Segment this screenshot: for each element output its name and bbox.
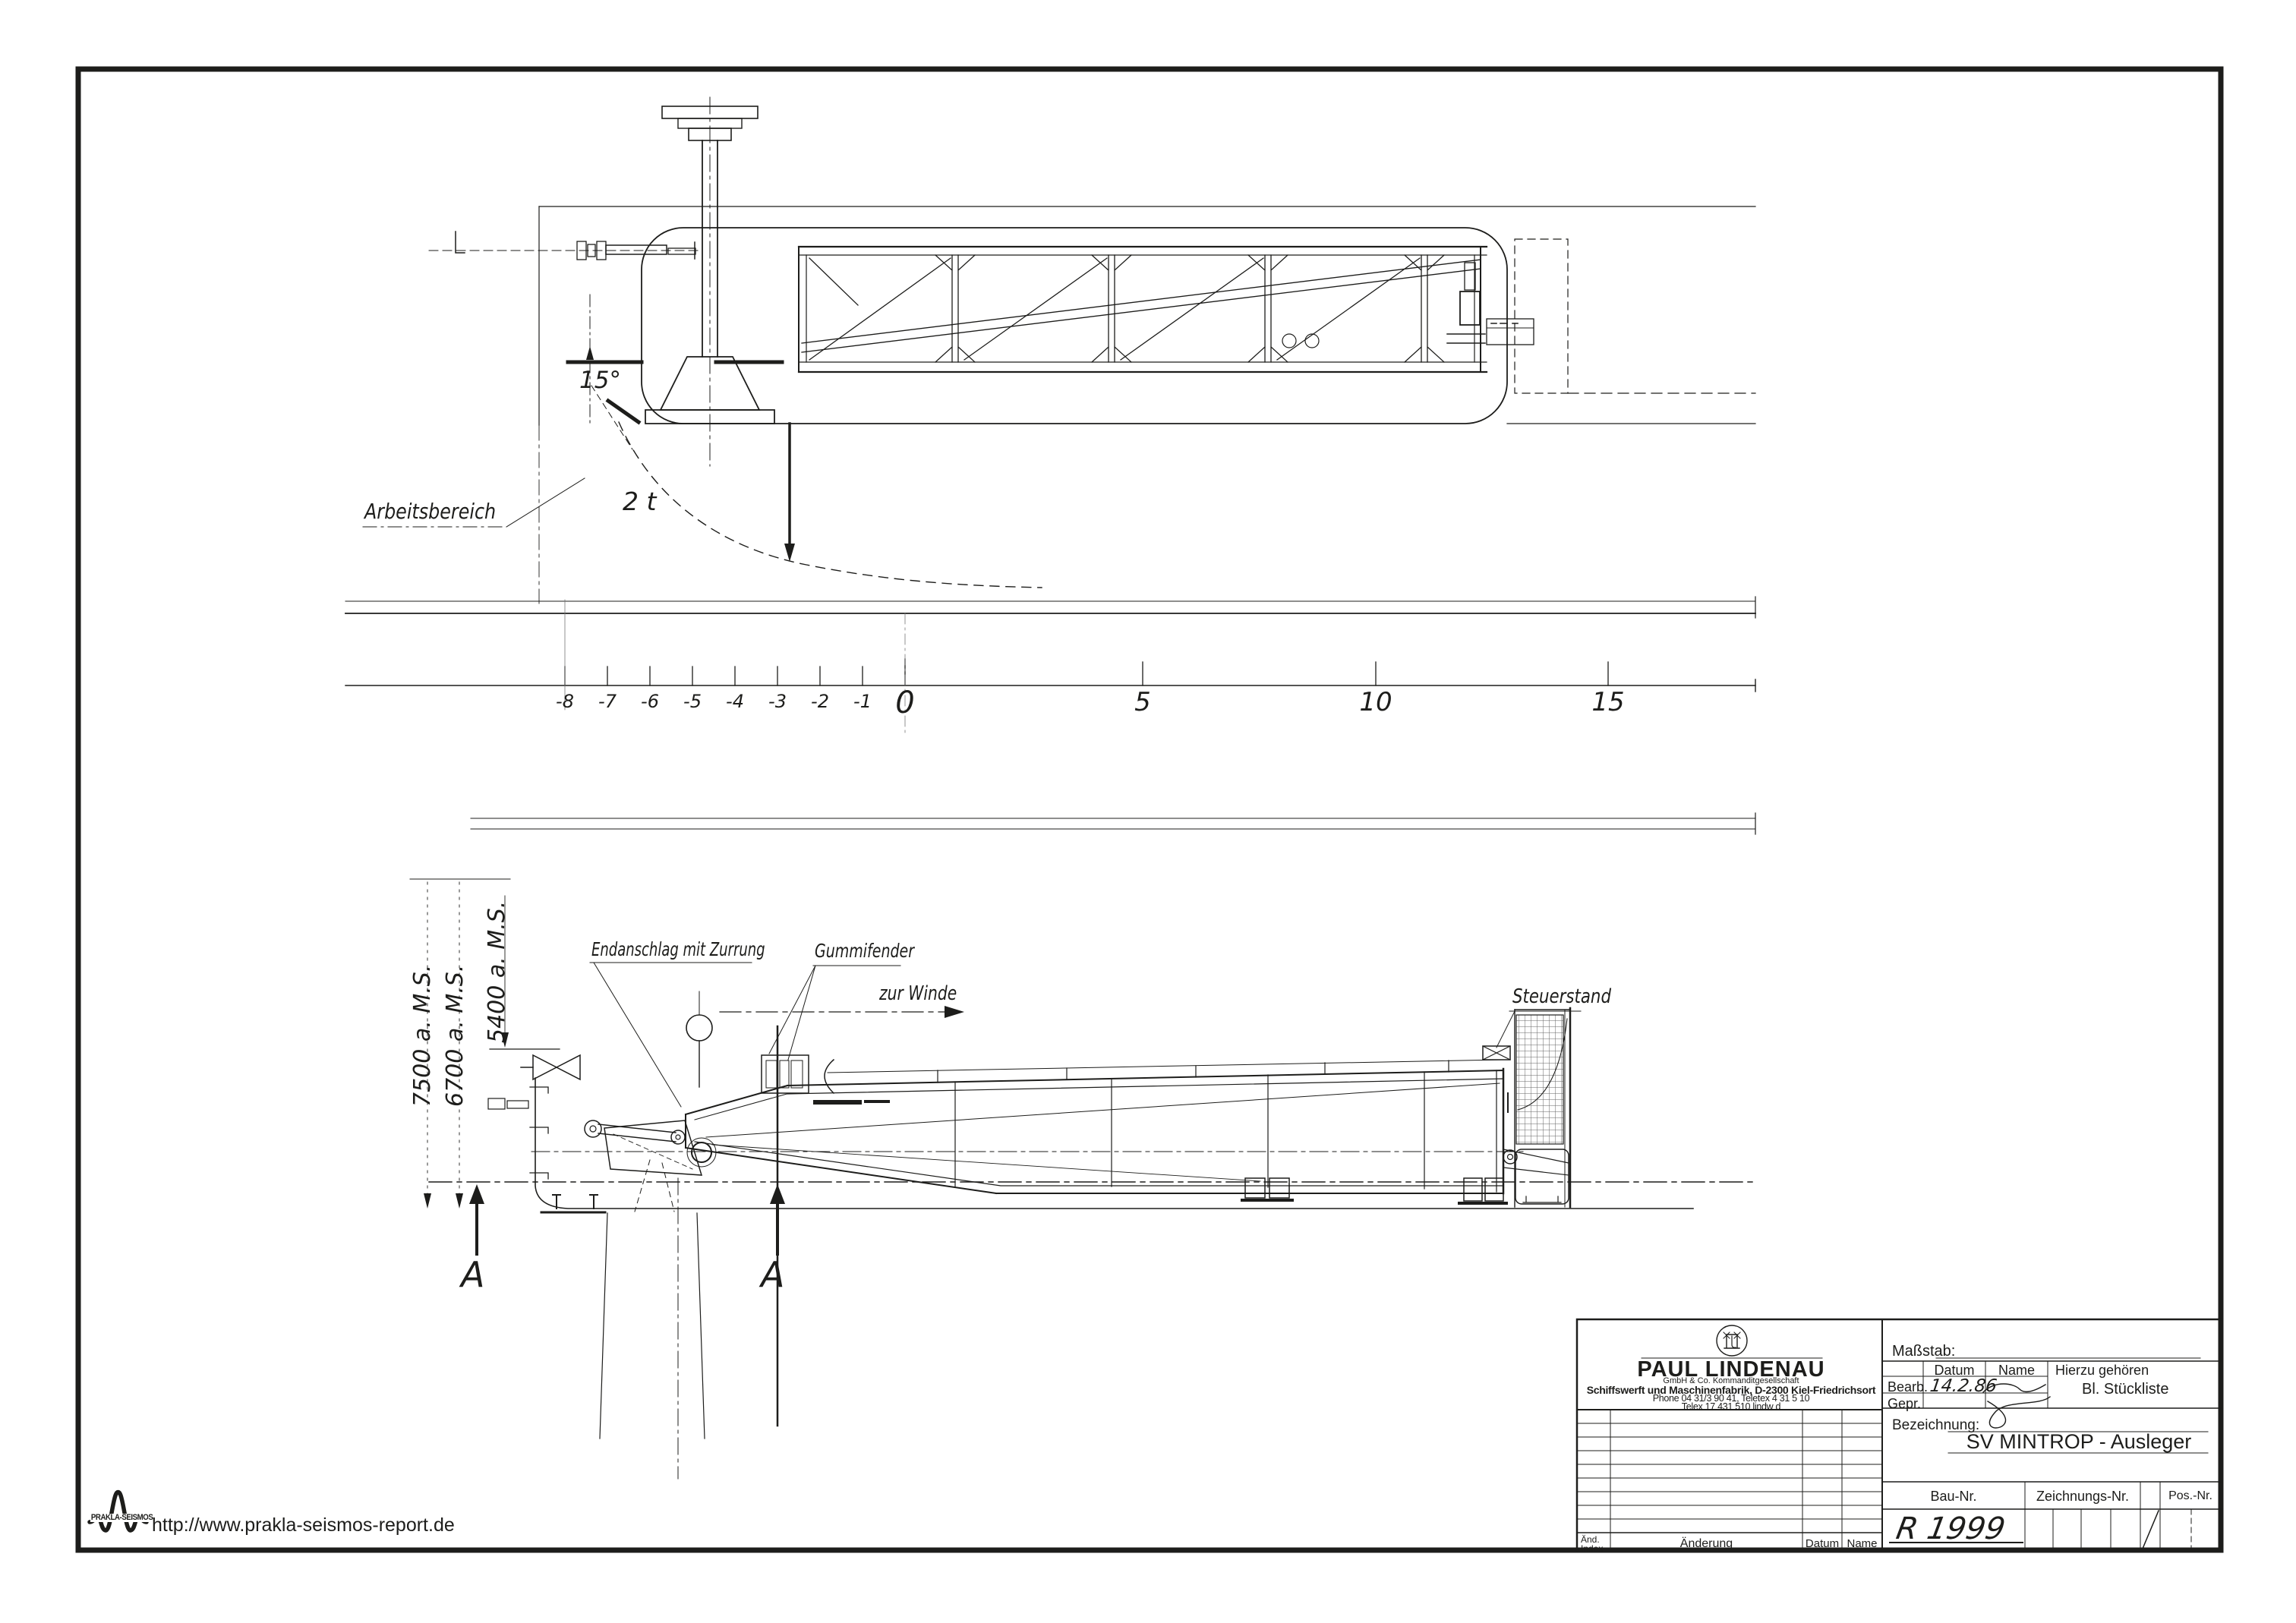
section-a-right-label: A [761,1257,784,1292]
stueckliste-label: Bl. Stückliste [2082,1382,2168,1397]
slew-angle-label: 15° [579,369,621,392]
load-capacity-label: 2 t [623,489,656,514]
gummifender-text: Gummifender [815,941,914,960]
zur-winde-label: zur Winde [879,984,979,1004]
steuerstand-text: Steuerstand [1512,987,1611,1007]
datum-header: Datum [1923,1363,1985,1377]
arbeitsbereich-label: Arbeitsbereich [364,501,519,522]
sheet-frame [78,69,2221,1550]
lindenau-emblem [1717,1325,1747,1356]
section-a-left-label: A [461,1257,484,1292]
ruler-tick-15: 15 [1585,689,1631,715]
elevation-view [429,991,1755,1479]
rev-name-label: Name [1842,1538,1882,1549]
ruler-tick-neg4: -4 [712,692,758,711]
ruler-tick-zero: 0 [882,688,928,718]
endanschlag-label: Endanschlag mit Zurrung [591,940,833,959]
ruler-tick-neg3: -3 [755,692,800,711]
gepr-label: Gepr. [1888,1397,1921,1410]
arbeitsbereich-text: Arbeitsbereich [364,501,496,522]
rev-datum-label: Datum [1802,1538,1842,1549]
name-header: Name [1985,1363,2048,1377]
company-telex: Telex 17 431 510 lindw d [1587,1402,1875,1412]
ruler-tick-neg2: -2 [797,692,843,711]
ruler-tick-10: 10 [1353,689,1399,715]
endanschlag-text: Endanschlag mit Zurrung [591,940,765,959]
bearb-datum-value: 14.2.86 [1929,1378,1998,1395]
dim-7500-label: 7500 a. M.S. [412,965,434,1107]
bearb-label: Bearb. [1888,1380,1928,1394]
dim-6700-label: 6700 a. M.S. [444,965,467,1107]
prakla-logo-text: PRAKLA-SEISMOS [90,1514,153,1522]
scale-ruler [345,597,1755,834]
section-markers [469,1184,785,1254]
bezeichnung-value: SV MINTROP - Ausleger [1950,1432,2208,1452]
footer-url: http://www.prakla-seismos-report.de [152,1516,455,1535]
plan-view [429,97,1755,604]
masstab-label: Maßstab: [1892,1344,1955,1359]
ruler-tick-neg6: -6 [627,692,673,711]
label-leaders [590,963,1581,1107]
ruler-tick-neg7: -7 [585,692,630,711]
prakla-seismos-logo-icon [90,1492,147,1531]
drawing-sheet: Arbeitsbereich 2 t 15° -8 -7 -6 -5 -4 -3… [0,0,2296,1623]
zeichnungs-nr-header: Zeichnungs-Nr. [2025,1489,2140,1503]
ruler-tick-neg8: -8 [542,692,588,711]
steuerstand-label: Steuerstand [1512,987,1633,1007]
pos-nr-header: Pos.-Nr. [2160,1490,2221,1502]
ruler-tick-5: 5 [1120,689,1165,715]
aenderung-label: Änderung [1610,1538,1802,1550]
index-label: Index [1581,1544,1603,1553]
bau-nr-value: R 1999 [1894,1514,2007,1544]
zur-winde-text: zur Winde [879,984,957,1004]
bau-nr-header: Bau-Nr. [1882,1489,2025,1503]
ruler-tick-neg1: -1 [840,692,885,711]
dim-5400-label: 5400 a. M.S. [486,901,509,1043]
ruler-tick-neg5: -5 [670,692,715,711]
hierzu-label: Hierzu gehören [2055,1363,2149,1377]
gummifender-label: Gummifender [815,941,945,960]
